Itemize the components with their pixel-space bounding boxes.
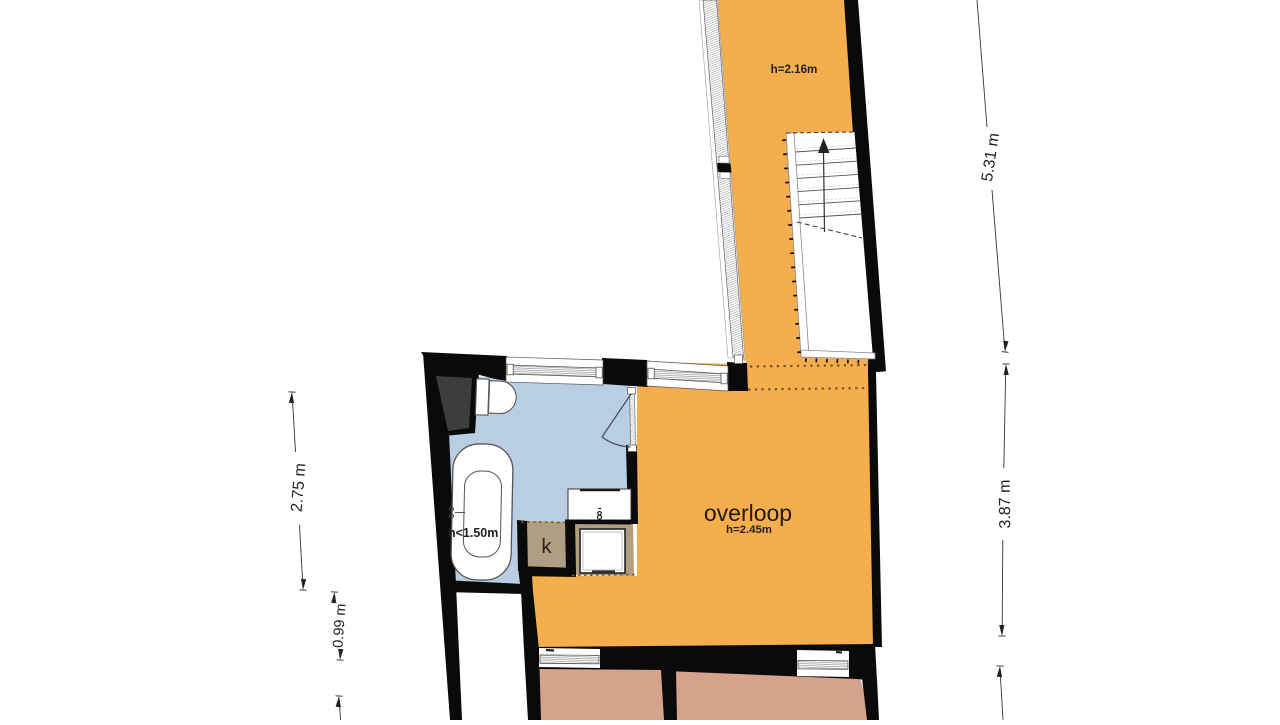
svg-text:overloop: overloop [704, 500, 792, 526]
svg-text:3.87 m: 3.87 m [997, 480, 1014, 529]
svg-text:h=2.16m: h=2.16m [771, 63, 818, 76]
svg-text:k: k [541, 535, 552, 558]
svg-text:0.99 m: 0.99 m [330, 603, 349, 648]
svg-text:h=2.45m: h=2.45m [726, 524, 772, 536]
svg-text:h<1.50m: h<1.50m [448, 526, 498, 540]
